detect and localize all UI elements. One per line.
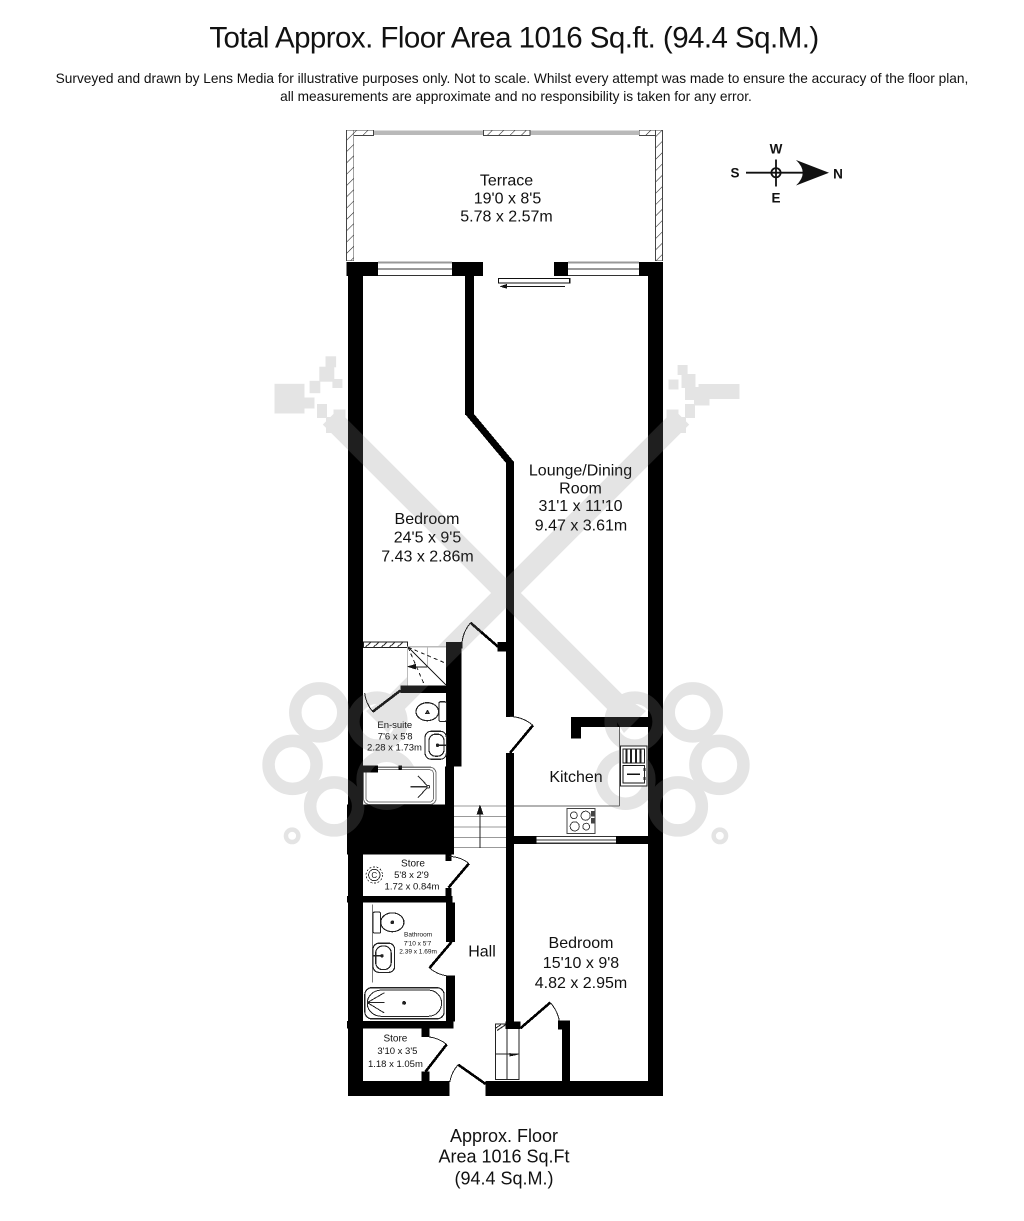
svg-text:Approx. Floor: Approx. Floor (450, 1126, 558, 1146)
svg-text:Store: Store (383, 1033, 407, 1044)
svg-text:Hall: Hall (468, 944, 496, 961)
svg-text:3'10 x 3'5: 3'10 x 3'5 (377, 1046, 417, 1057)
svg-text:Kitchen: Kitchen (549, 769, 602, 786)
svg-text:2.39 x 1.69m: 2.39 x 1.69m (399, 949, 437, 956)
svg-text:Total Approx. Floor Area 1016: Total Approx. Floor Area 1016 Sq.ft. (94… (209, 22, 818, 55)
svg-text:S: S (730, 166, 739, 181)
svg-text:N: N (833, 167, 843, 182)
svg-text:Terrace: Terrace (480, 173, 533, 190)
svg-text:1.72 x 0.84m: 1.72 x 0.84m (385, 882, 440, 893)
svg-text:4.82 x 2.95m: 4.82 x 2.95m (535, 975, 628, 992)
svg-text:W: W (770, 142, 783, 157)
svg-text:(94.4 Sq.M.): (94.4 Sq.M.) (454, 1168, 553, 1188)
svg-text:7'10 x 5'7: 7'10 x 5'7 (404, 941, 432, 948)
svg-text:Store: Store (401, 858, 425, 869)
svg-text:5.78 x 2.57m: 5.78 x 2.57m (460, 209, 553, 226)
svg-text:Bedroom: Bedroom (549, 935, 614, 952)
svg-text:Area 1016 Sq.Ft: Area 1016 Sq.Ft (438, 1147, 569, 1167)
svg-text:Surveyed and drawn by Lens Med: Surveyed and drawn by Lens Media for ill… (56, 71, 969, 86)
svg-text:C: C (371, 871, 377, 880)
svg-text:1.18 x 1.05m: 1.18 x 1.05m (368, 1059, 423, 1070)
svg-text:E: E (771, 191, 780, 206)
svg-text:5'8 x 2'9: 5'8 x 2'9 (394, 870, 429, 881)
svg-text:Bathroom: Bathroom (404, 932, 432, 939)
svg-text:all measurements are approxima: all measurements are approximate and no … (280, 89, 752, 104)
svg-text:19'0 x 8'5: 19'0 x 8'5 (474, 191, 542, 208)
svg-text:15'10 x 9'8: 15'10 x 9'8 (543, 955, 619, 972)
